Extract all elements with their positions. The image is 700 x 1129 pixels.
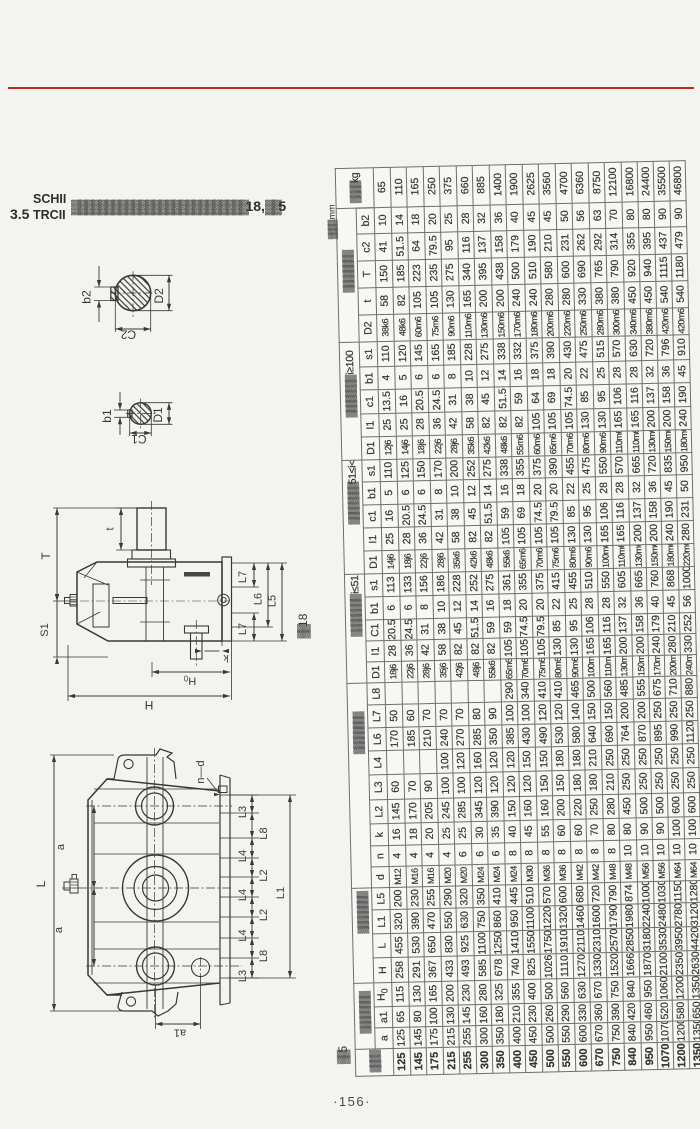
svg-text:L4: L4 xyxy=(237,889,249,901)
svg-text:H0: H0 xyxy=(183,674,196,687)
svg-text:L2: L2 xyxy=(258,909,270,921)
svg-text:L8: L8 xyxy=(258,827,270,839)
svg-text:L7: L7 xyxy=(237,623,249,635)
svg-text:L6: L6 xyxy=(253,593,265,605)
svg-text:L3: L3 xyxy=(237,970,249,982)
svg-text:T: T xyxy=(39,552,53,560)
svg-text:L8: L8 xyxy=(258,950,270,962)
svg-text:C1: C1 xyxy=(131,432,147,446)
svg-text:C2: C2 xyxy=(121,328,137,342)
svg-text:L2: L2 xyxy=(258,869,270,881)
svg-text:▓▓18: ▓▓18 xyxy=(296,613,311,638)
svg-text:a: a xyxy=(55,843,67,850)
svg-text:D2: D2 xyxy=(152,288,166,304)
svg-text:L3: L3 xyxy=(237,806,249,818)
svg-text:b2: b2 xyxy=(80,290,94,304)
svg-text:H: H xyxy=(145,698,154,712)
svg-text:L4: L4 xyxy=(237,850,249,862)
svg-text:n—d: n—d xyxy=(195,760,207,783)
svg-text:L: L xyxy=(34,880,48,887)
svg-text:D1: D1 xyxy=(151,407,165,423)
svg-text:L7: L7 xyxy=(237,571,249,583)
svg-text:L5: L5 xyxy=(267,595,279,607)
svg-text:k: k xyxy=(223,652,229,663)
svg-text:L4: L4 xyxy=(237,929,249,941)
svg-text:L1: L1 xyxy=(275,887,287,899)
svg-text:a1: a1 xyxy=(174,1027,186,1039)
svg-text:S1: S1 xyxy=(39,623,51,636)
svg-text:a: a xyxy=(53,926,65,933)
svg-text:b1: b1 xyxy=(100,409,114,423)
svg-text:t: t xyxy=(105,527,117,530)
